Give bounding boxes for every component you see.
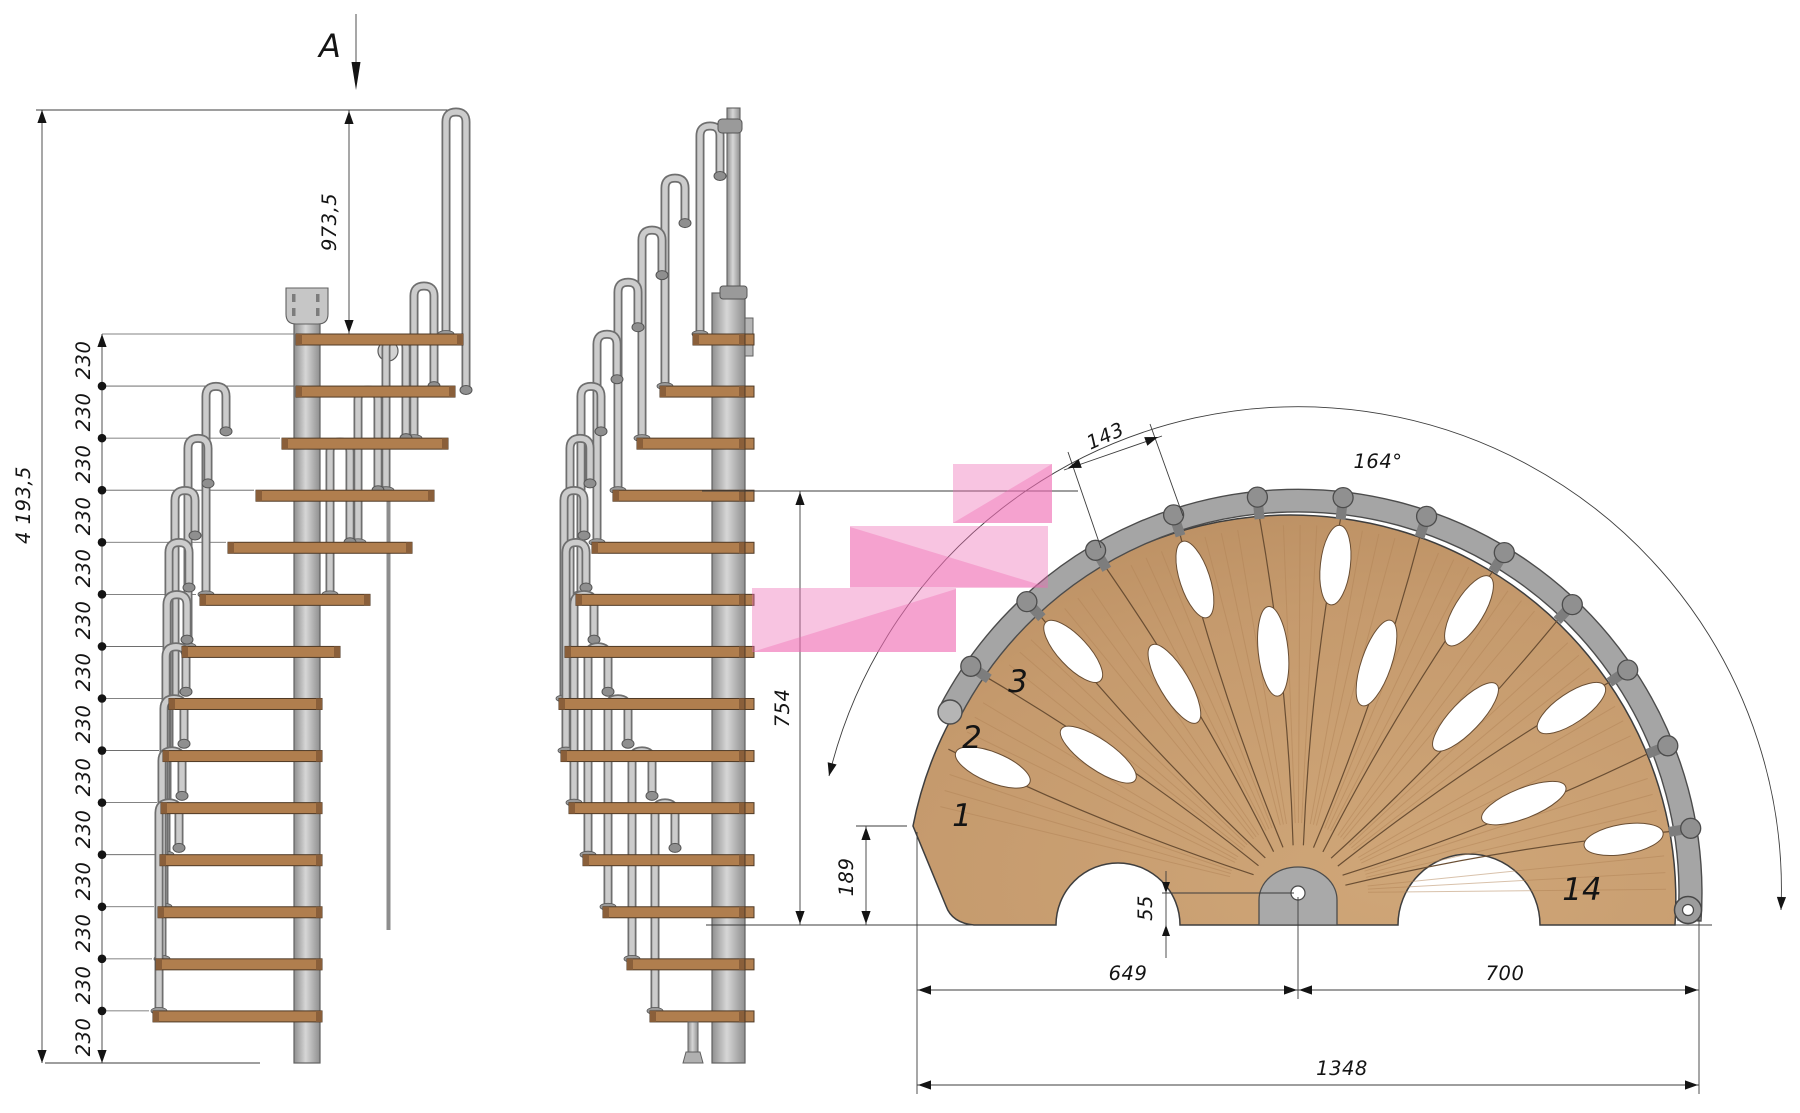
chain-node-dot (98, 902, 107, 911)
wall-bracket (286, 288, 328, 324)
step-width-dim-label: 143 (1083, 418, 1128, 455)
step-board-end (660, 386, 666, 397)
dim-arrow-icon (795, 492, 804, 505)
foot-post (688, 1022, 698, 1056)
step-board (693, 334, 745, 345)
step-board (565, 646, 745, 657)
step-board-end (739, 386, 745, 397)
riser-dim-label: 230 (72, 497, 95, 536)
step-board (163, 751, 322, 762)
step-board-end (739, 1011, 745, 1022)
step-board-end (156, 959, 162, 970)
step-board-end (169, 698, 175, 709)
dim-arrow-icon (97, 1050, 106, 1063)
center-pole-elevation (712, 293, 745, 1063)
arc-angle-dim-label: 164° (1354, 450, 1403, 473)
baluster-lug-cap (1164, 505, 1184, 525)
step-number-3: 3 (1008, 664, 1028, 700)
rail-clamp (220, 427, 232, 436)
step-board-end (650, 1011, 656, 1022)
step-board-end (442, 438, 448, 449)
section-label: A (317, 27, 341, 65)
step-collar (745, 542, 754, 553)
step-board-end (739, 542, 745, 553)
step-collar (745, 855, 754, 866)
step-board-end (200, 594, 206, 605)
rail-end-cap (938, 700, 962, 724)
step-board (569, 803, 745, 814)
middle-elevation-view (556, 108, 754, 1063)
chain-node-dot (98, 798, 107, 807)
riser-dim-label: 230 (72, 810, 95, 849)
chain-node-dot (98, 538, 107, 547)
step-board-end (457, 334, 463, 345)
rail-clamp (602, 687, 614, 696)
step-collar (745, 438, 754, 449)
bracket-slot (292, 294, 296, 302)
rail-clamp (622, 739, 634, 748)
baluster-lug-cap (1247, 487, 1267, 507)
baluster-tube (386, 338, 406, 490)
step-board-end (153, 1011, 159, 1022)
step-board-end (161, 803, 167, 814)
pole-offset-dim-label: 55 (1134, 895, 1157, 921)
technical-drawing-canvas: A 4 193,5 973,5 230 230 230 230 230 230 … (0, 0, 1800, 1113)
step-board-end (316, 959, 322, 970)
step-board (200, 594, 370, 605)
dim-arrow-icon (1162, 925, 1170, 936)
riser-dim-labels: 230 230 230 230 230 230 230 230 230 230 … (72, 341, 95, 1057)
left-elevation-view: 4 193,5 973,5 230 230 230 230 230 230 23… (12, 110, 472, 1063)
step-board (153, 1011, 322, 1022)
step-board-end (449, 386, 455, 397)
step-board (559, 698, 745, 709)
step-board-end (739, 334, 745, 345)
step-board-end (163, 751, 169, 762)
step-board-end (739, 438, 745, 449)
step-board-end (603, 907, 609, 918)
step-board (169, 698, 322, 709)
step-board-end (406, 542, 412, 553)
step-board (660, 386, 745, 397)
step-board (296, 334, 463, 345)
dim-arrow-icon (861, 911, 870, 924)
step-board-end (158, 907, 164, 918)
riser-dim-label: 230 (72, 758, 95, 797)
dim-arrow-icon (828, 762, 837, 776)
chain-node-dot (98, 590, 107, 599)
step-board (256, 490, 434, 501)
step-board-end (334, 646, 340, 657)
rail-clamp (460, 386, 472, 395)
rail-clamp (176, 791, 188, 800)
rail-clamp (173, 843, 185, 852)
baluster-lug-cap (1562, 595, 1582, 615)
bracket-slot (316, 308, 320, 316)
eyelet-hole (1683, 905, 1694, 916)
chain-node-dot (98, 382, 107, 391)
step-board-end (559, 698, 565, 709)
baluster-lug-cap (1658, 736, 1678, 756)
rail-clamp (584, 479, 596, 488)
step-collar (745, 1011, 754, 1022)
riser-dim-label: 230 (72, 705, 95, 744)
step-board-end (739, 594, 745, 605)
step-board-end (693, 334, 699, 345)
step-board-end (316, 855, 322, 866)
bracket-slot (292, 308, 296, 316)
rail-clamp (714, 172, 726, 181)
step-board (228, 542, 412, 553)
pole-sleeve-clamp (720, 286, 747, 299)
chain-node-dot (98, 642, 107, 651)
step-board (613, 490, 745, 501)
dim-arrow-icon (1685, 1080, 1698, 1089)
step-collar (745, 698, 754, 709)
rail-clamp (679, 219, 691, 228)
step-board (296, 386, 455, 397)
step-board-end (565, 646, 571, 657)
step-number-2: 2 (962, 720, 982, 756)
step-board-end (739, 803, 745, 814)
step-board (637, 438, 745, 449)
rail-clamp (632, 323, 644, 332)
baluster-lug-cap (961, 656, 981, 676)
step-board-end (569, 803, 575, 814)
step-collar (745, 907, 754, 918)
chain-node-dot (98, 746, 107, 755)
riser-dim-label: 230 (72, 601, 95, 640)
step-board (161, 803, 322, 814)
rail-clamp (189, 531, 201, 540)
rail-clamp (178, 739, 190, 748)
baluster-tube (358, 390, 378, 542)
step-board-end (316, 698, 322, 709)
dim-arrow-icon (344, 111, 353, 124)
baluster-tube (414, 286, 434, 438)
step-collar (745, 751, 754, 762)
step-board-end (160, 855, 166, 866)
baluster-tube (330, 442, 350, 594)
riser-dim-label: 230 (72, 653, 95, 692)
baluster-lug-cap (1017, 592, 1037, 612)
rail-clamp (669, 843, 681, 852)
pole-upper-tube (727, 108, 740, 294)
step-board-end (739, 907, 745, 918)
step-number-14: 14 (1562, 872, 1601, 908)
step-board-end (739, 698, 745, 709)
step-board (576, 594, 745, 605)
baluster-tube (446, 112, 466, 390)
step-board (603, 907, 745, 918)
section-marker: A (317, 14, 360, 90)
dim-arrow-icon (97, 334, 106, 347)
step-board-end (316, 1011, 322, 1022)
dim-arrow-icon (37, 110, 46, 123)
rail-clamp (183, 583, 195, 592)
dim-arrow-icon (918, 1080, 931, 1089)
foot-base (683, 1052, 703, 1063)
step-board-end (739, 959, 745, 970)
chain-node-dot (98, 434, 107, 443)
step-board (182, 646, 340, 657)
dim-arrow-icon (1299, 985, 1312, 994)
step-collar (745, 959, 754, 970)
rail-clamp (181, 635, 193, 644)
dim-arrow-icon (1777, 897, 1786, 910)
dim-arrow-icon (795, 911, 804, 924)
dim-arrow-icon (918, 985, 931, 994)
step-board-end (739, 855, 745, 866)
rail-clamp (595, 427, 607, 436)
riser-dim-label: 230 (72, 862, 95, 901)
rail-clamp (718, 119, 742, 133)
step-board-end (592, 542, 598, 553)
step-board-end (182, 646, 188, 657)
top-offset-dim-label: 973,5 (318, 193, 341, 251)
step-board-end (583, 855, 589, 866)
step-board-end (739, 490, 745, 501)
riser-dim-label: 230 (72, 445, 95, 484)
dim-arrow-icon (344, 320, 353, 333)
baluster-tube (665, 178, 685, 386)
total-height-dim-label: 4 193,5 (12, 466, 35, 544)
step-board-end (316, 751, 322, 762)
dim-arrow-icon (37, 1050, 46, 1063)
corner-offset-dim-label: 189 (835, 858, 858, 897)
rail-clamp (180, 687, 192, 696)
riser-dim-label: 230 (72, 1018, 95, 1057)
rail-clamp (646, 791, 658, 800)
step-collar (745, 334, 754, 345)
chain-node-dot (98, 694, 107, 703)
chain-node-dot (98, 486, 107, 495)
dim-arrow-icon (861, 827, 870, 840)
step-board (592, 542, 745, 553)
step-board (583, 855, 745, 866)
step-board-end (627, 959, 633, 970)
step-board-end (637, 438, 643, 449)
step-board-end (296, 334, 302, 345)
step-board-end (296, 386, 302, 397)
span-total-dim-label: 1348 (1316, 1057, 1368, 1080)
rail-clamp (656, 271, 668, 280)
riser-dim-label: 230 (72, 549, 95, 588)
baluster-lug-cap (1333, 488, 1353, 508)
baluster-lug-cap (1494, 543, 1514, 563)
step-board (650, 1011, 745, 1022)
step-board (156, 959, 322, 970)
step-number-1: 1 (952, 798, 972, 834)
span-right-dim-label: 700 (1486, 962, 1525, 985)
step-board-end (561, 751, 567, 762)
step-board-end (316, 907, 322, 918)
section-arrow-icon (352, 62, 361, 90)
step-collar (745, 386, 754, 397)
step-board (158, 907, 322, 918)
rail-clamp (611, 375, 623, 384)
step-board-end (256, 490, 262, 501)
step-board-end (228, 542, 234, 553)
height-dim-label: 754 (771, 689, 794, 728)
staircase-drawing: A 4 193,5 973,5 230 230 230 230 230 230 … (0, 0, 1800, 1113)
step-board (627, 959, 745, 970)
step-board-end (364, 594, 370, 605)
chain-node-dot (98, 850, 107, 859)
step-board (160, 855, 322, 866)
plan-view: 754 189 55 649 700 1348 164° 143 (702, 407, 1786, 1094)
step-board-end (576, 594, 582, 605)
step-board-end (739, 751, 745, 762)
step-board (561, 751, 745, 762)
rail-clamp (202, 479, 214, 488)
center-pole-elevation (294, 322, 320, 1063)
step-board (282, 438, 448, 449)
baluster-lug-cap (1417, 506, 1437, 526)
riser-dim-label: 230 (72, 966, 95, 1005)
step-board-end (613, 490, 619, 501)
riser-dim-label: 230 (72, 341, 95, 380)
baluster-lug-cap (1618, 660, 1638, 680)
step-board-end (428, 490, 434, 501)
step-board-end (316, 803, 322, 814)
dim-arrow-icon (1284, 985, 1297, 994)
chain-node-dot (98, 955, 107, 964)
step-collar (745, 803, 754, 814)
riser-dim-label: 230 (72, 914, 95, 953)
bracket-slot (316, 294, 320, 302)
baluster-tube (642, 230, 662, 438)
baluster-lug-cap (1086, 540, 1106, 560)
baluster-lug-cap (1681, 818, 1701, 838)
step-board-end (282, 438, 288, 449)
step-board-end (739, 646, 745, 657)
baluster-tube (618, 282, 638, 490)
span-left-dim-label: 649 (1109, 962, 1148, 985)
dim-arrow-icon (1685, 985, 1698, 994)
step-collar (745, 490, 754, 501)
chain-node-dot (98, 1007, 107, 1016)
riser-dim-label: 230 (72, 393, 95, 432)
